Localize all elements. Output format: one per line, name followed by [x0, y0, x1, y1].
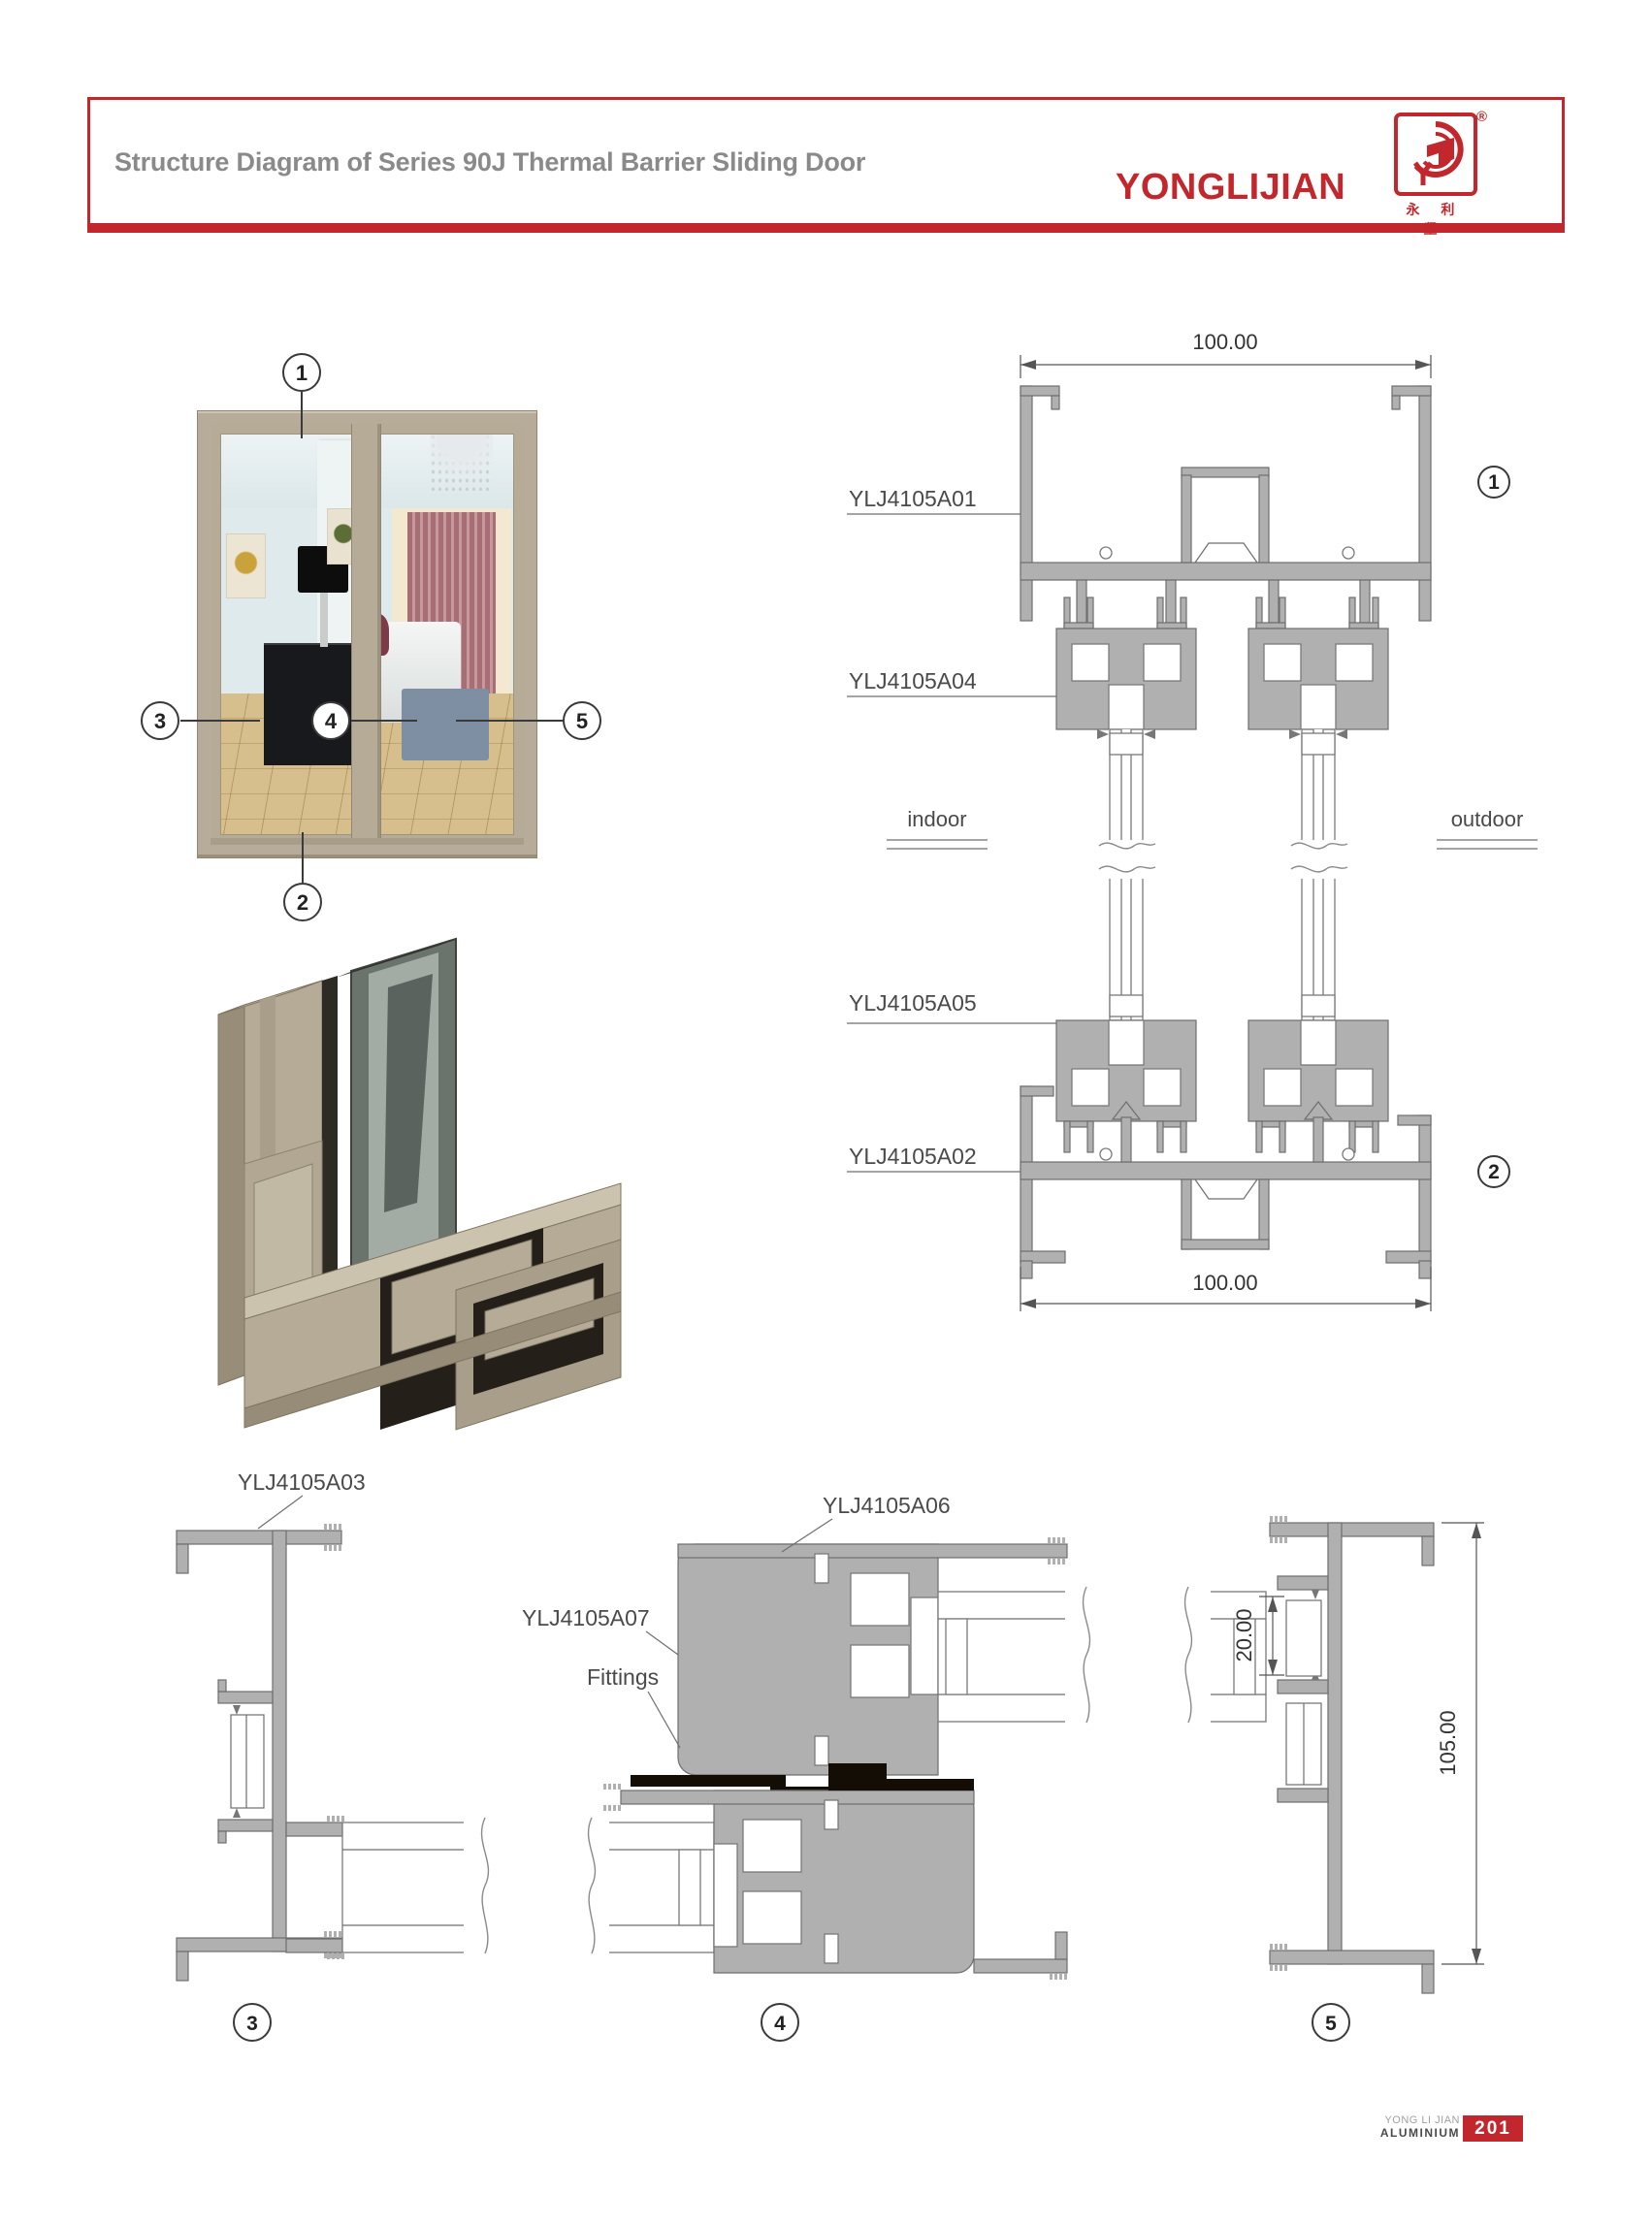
page-title: Structure Diagram of Series 90J Thermal …: [114, 147, 988, 177]
section-callout-2: 2: [1488, 1161, 1500, 1183]
door-opening-scene: [211, 424, 524, 845]
right-jamb-profile: [1270, 1516, 1434, 1993]
top-track-profile: [1020, 386, 1431, 623]
outdoor-sash-section: [1248, 597, 1388, 1152]
dim-100-bottom-text: 100.00: [1192, 1271, 1257, 1295]
door-product-photo: [197, 410, 537, 858]
profile-3d-render: [184, 931, 631, 1460]
dim-100-top-text: 100.00: [1192, 330, 1257, 354]
indoor-sash-section: [1056, 597, 1196, 1152]
label-ylj4105a06: YLJ4105A06: [823, 1493, 951, 1518]
door-bottom-rail: [211, 838, 524, 845]
footer-brand-line2: ALUMINIUM: [1276, 2127, 1460, 2140]
door-callout-3: 3: [141, 701, 179, 740]
indoor-label: indoor: [907, 807, 966, 831]
label-ylj4105a01: YLJ4105A01: [849, 486, 977, 511]
upper-leaf-glass: [938, 1587, 1266, 1726]
page-number-badge: 201: [1463, 2115, 1523, 2142]
leader-a07: [646, 1631, 678, 1655]
door-callout-5: 5: [563, 701, 601, 740]
dim-20-text: 20.00: [1232, 1608, 1256, 1661]
leader-a03: [258, 1496, 303, 1529]
registered-trademark-icon: ®: [1476, 109, 1487, 125]
dim-105-text: 105.00: [1436, 1710, 1460, 1775]
label-ylj4105a02: YLJ4105A02: [849, 1144, 977, 1169]
outdoor-label: outdoor: [1451, 807, 1524, 831]
dim-100-bottom: 100.00: [1020, 1267, 1431, 1311]
dim-105: 105.00: [1436, 1523, 1484, 1964]
door-callout-1: 1: [282, 353, 321, 392]
label-fittings: Fittings: [587, 1664, 659, 1690]
horizontal-section-drawing: 20.00 105.00 YLJ4105A03 YLJ4105A06 YLJ41…: [97, 1445, 1571, 2066]
leader-fittings: [648, 1692, 680, 1748]
door-callout-4: 4: [311, 701, 350, 740]
callout-5-leader: [456, 720, 563, 722]
label-ylj4105a05: YLJ4105A05: [849, 990, 977, 1016]
callout-4-leader: [351, 720, 417, 722]
label-ylj4105a04: YLJ4105A04: [849, 668, 977, 694]
section-callout-3: 3: [246, 2013, 258, 2035]
brand-logo-icon: [1394, 113, 1477, 196]
section-callout-5: 5: [1325, 2013, 1337, 2035]
door-middle-stile: [351, 424, 381, 845]
footer-brand: YONG LI JIAN ALUMINIUM: [1276, 2114, 1460, 2140]
label-ylj4105a07: YLJ4105A07: [522, 1605, 650, 1630]
left-jamb-profile: [177, 1524, 344, 1981]
door-callout-2: 2: [283, 883, 322, 921]
label-ylj4105a03: YLJ4105A03: [238, 1469, 366, 1495]
vertical-section-drawing: 100.00 1 YLJ4105A01: [825, 330, 1571, 1358]
lower-leaf-glass: [342, 1818, 714, 1957]
callout-3-leader: [180, 720, 260, 722]
section-callout-4: 4: [774, 2013, 786, 2035]
callout-2-leader: [302, 832, 304, 883]
brand-chinese-characters: 永 利 坚: [1394, 200, 1475, 239]
callout-1-leader: [301, 392, 303, 438]
door-left-sash-frame: [211, 424, 373, 845]
door-right-sash-frame: [358, 424, 524, 845]
brand-wordmark: YONGLIJIAN: [1116, 167, 1345, 209]
dim-100-top: 100.00: [1020, 330, 1431, 378]
section-callout-1: 1: [1488, 471, 1500, 494]
